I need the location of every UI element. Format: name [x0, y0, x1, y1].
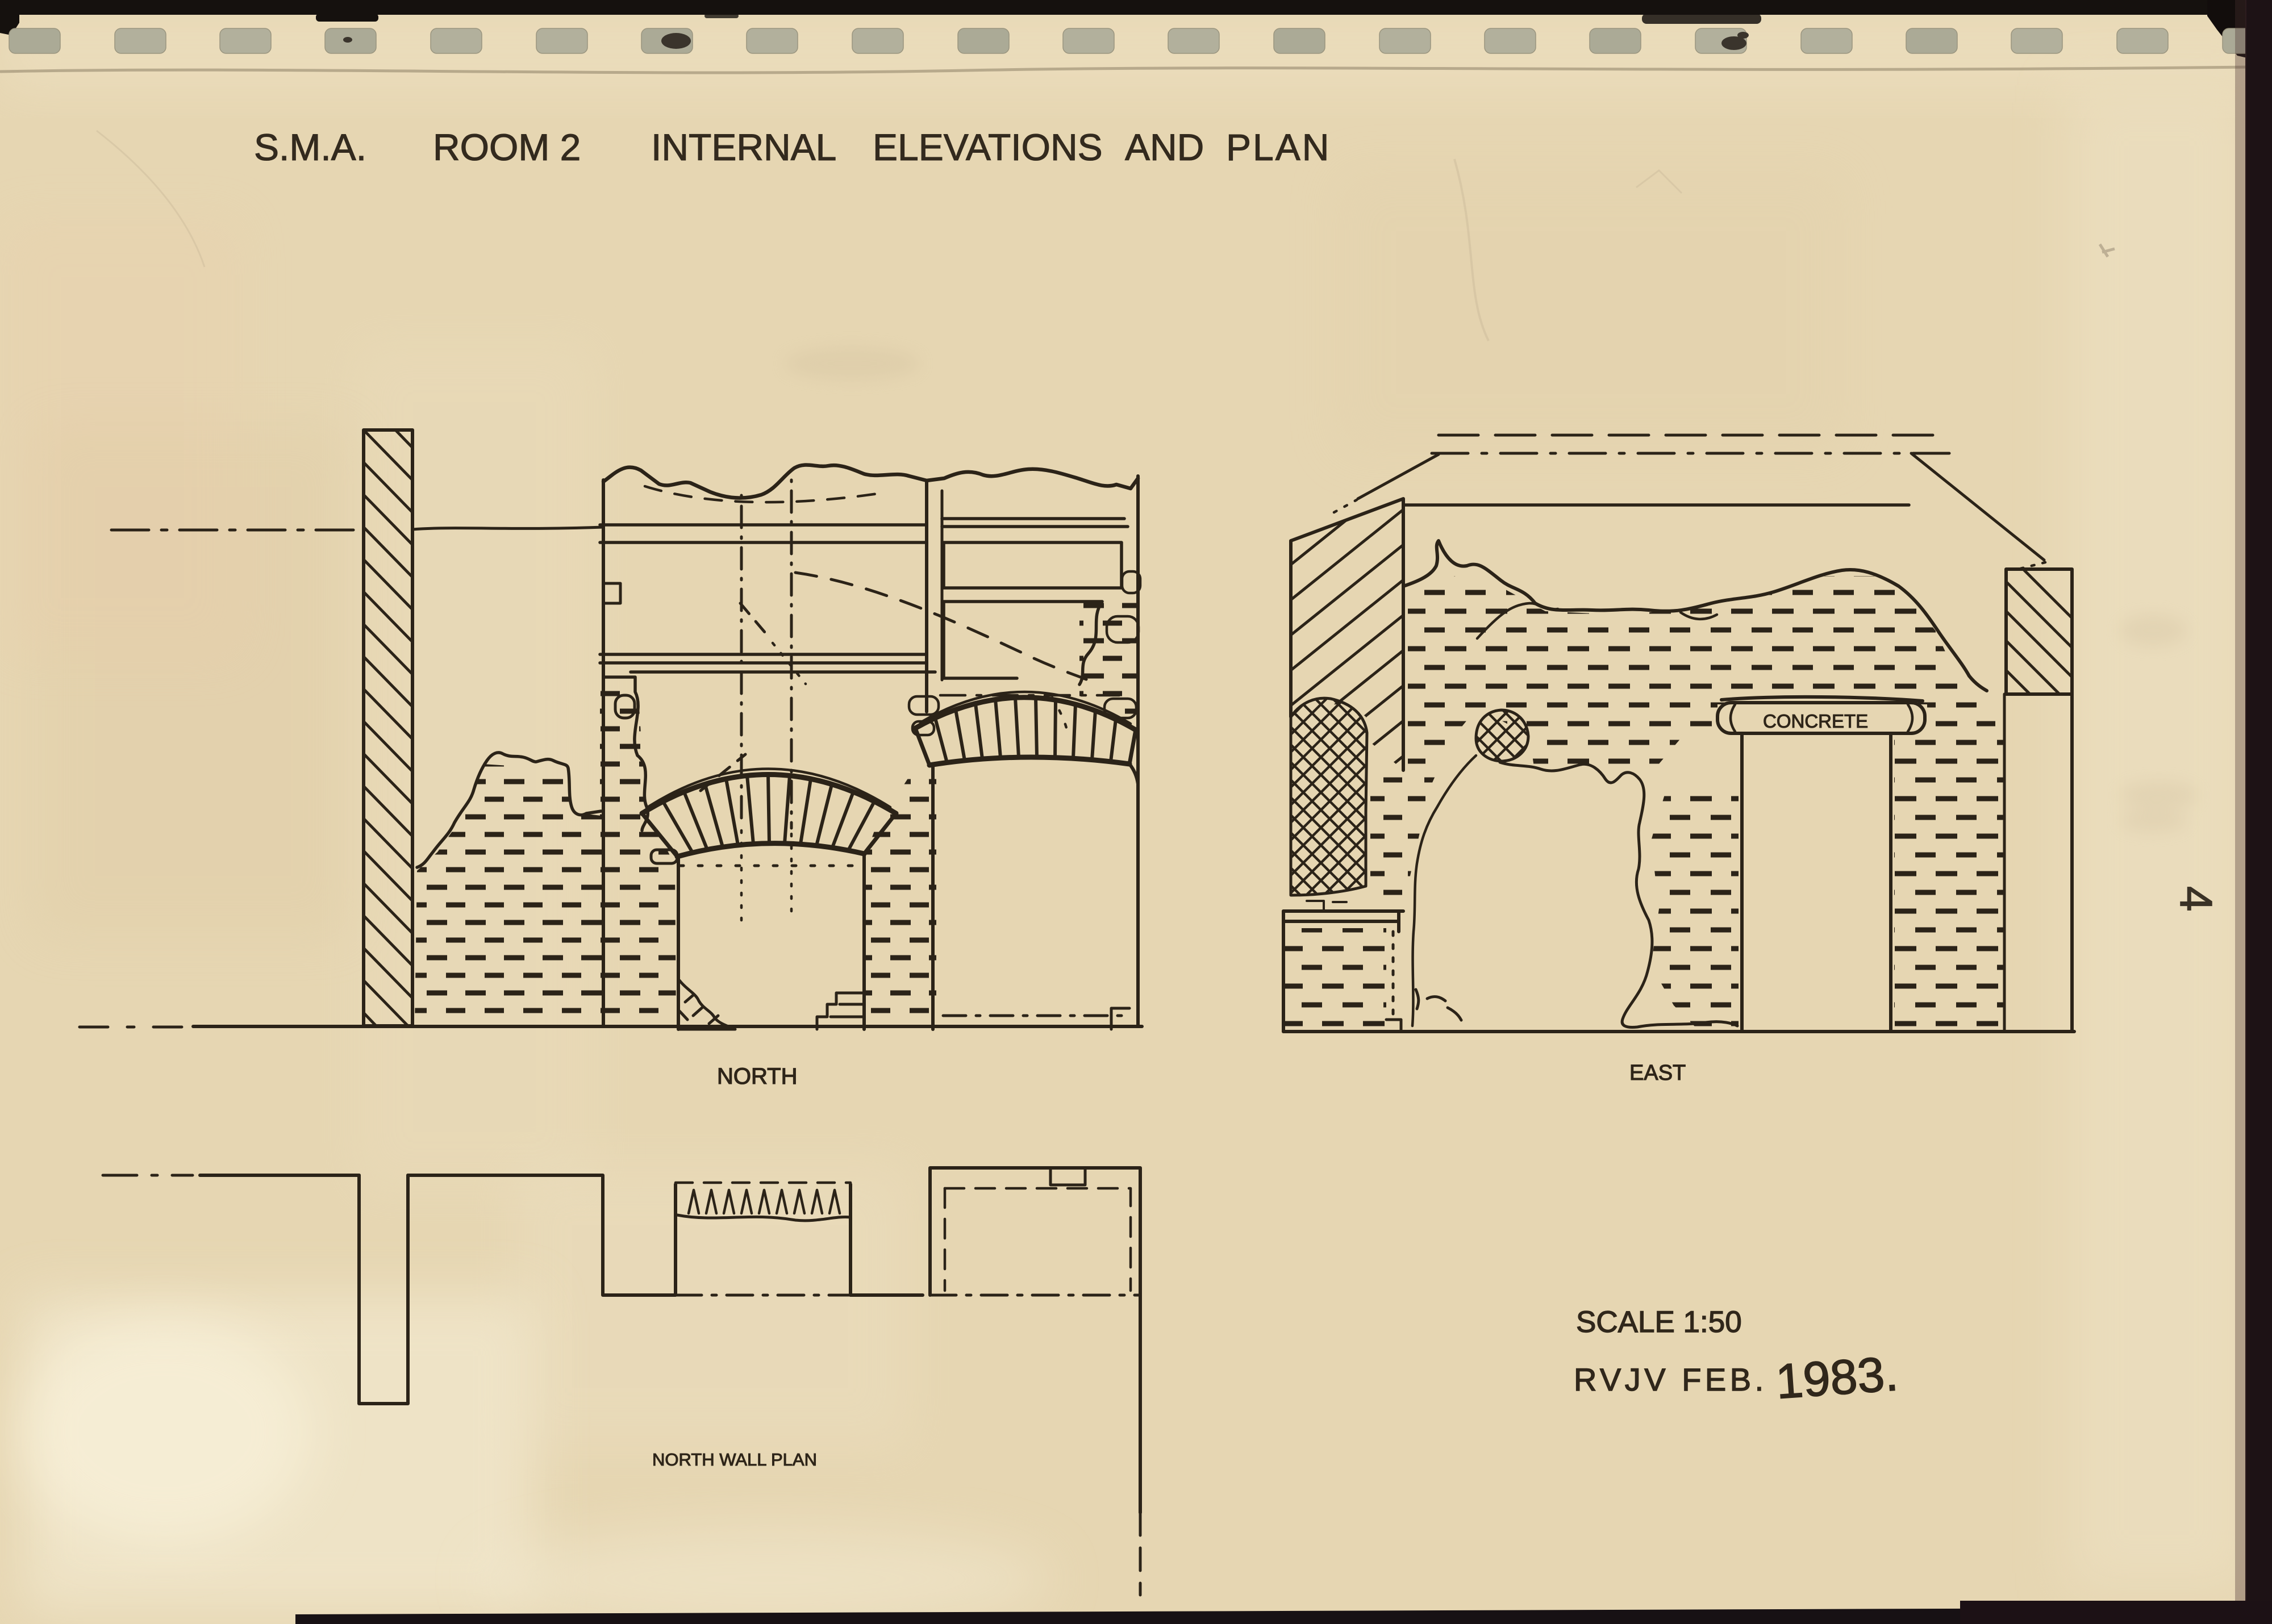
svg-text:1983.: 1983. [1774, 1346, 1900, 1409]
svg-text:ELEVATIONS: ELEVATIONS [873, 126, 1103, 168]
svg-text:SCALE 1:50: SCALE 1:50 [1576, 1305, 1742, 1339]
svg-text:ROOM 2: ROOM 2 [433, 126, 581, 168]
svg-text:PLAN: PLAN [1226, 126, 1331, 168]
svg-text:S.M.A.: S.M.A. [254, 126, 366, 168]
svg-text:RVJV FEB.: RVJV FEB. [1574, 1362, 1767, 1397]
svg-text:INTERNAL: INTERNAL [651, 126, 836, 168]
svg-text:CONCRETE: CONCRETE [1763, 711, 1868, 732]
svg-text:NORTH WALL PLAN: NORTH WALL PLAN [652, 1450, 817, 1469]
svg-text:NORTH: NORTH [717, 1064, 797, 1089]
svg-text:4: 4 [2171, 886, 2221, 912]
svg-text:AND: AND [1125, 126, 1204, 168]
svg-text:EAST: EAST [1629, 1061, 1686, 1085]
